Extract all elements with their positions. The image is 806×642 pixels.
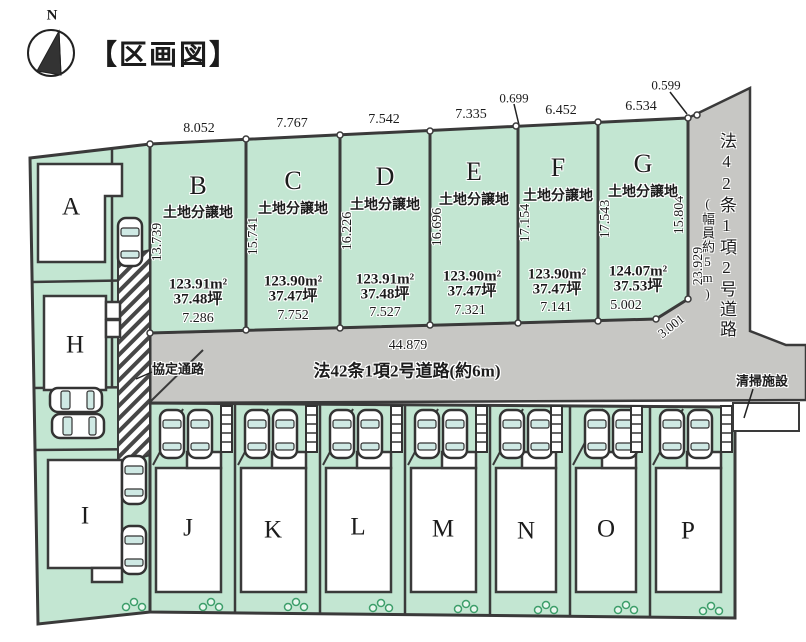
area-m2-F: 123.90m² bbox=[528, 268, 586, 283]
car-icon bbox=[52, 414, 104, 438]
plot-label-F: F bbox=[551, 155, 565, 181]
dim-top-E: 7.335 bbox=[455, 108, 487, 122]
stairs-icon bbox=[721, 406, 732, 452]
dim-side-G: 17.543 bbox=[599, 200, 613, 239]
dim-top-D: 7.542 bbox=[368, 113, 400, 127]
dim-bottom-G: 5.002 bbox=[610, 299, 642, 313]
dim-top-C: 7.767 bbox=[276, 117, 308, 131]
stairs-icon bbox=[631, 406, 642, 452]
dim-bottom-D: 7.527 bbox=[369, 306, 401, 320]
car-icon bbox=[188, 410, 212, 458]
stairs-icon bbox=[476, 406, 487, 452]
dim-road-total: 44.879 bbox=[389, 339, 428, 353]
area-m2-C: 123.90m² bbox=[264, 275, 322, 290]
plot-label-A: A bbox=[62, 195, 80, 220]
car-icon bbox=[118, 218, 142, 266]
area-tsubo-D: 37.48坪 bbox=[361, 288, 410, 303]
cleaning-facility-box bbox=[733, 403, 799, 431]
plot-label-P: P bbox=[681, 519, 695, 544]
area-tsubo-F: 37.47坪 bbox=[533, 283, 582, 298]
building-H-step bbox=[106, 320, 120, 337]
plot-label-L: L bbox=[350, 515, 365, 540]
right-road-width-note: (幅員約5m) bbox=[701, 196, 714, 302]
car-icon bbox=[245, 410, 269, 458]
area-m2-B: 123.91m² bbox=[169, 278, 227, 293]
dim-side-C: 15.741 bbox=[247, 217, 261, 256]
dim-jog-g: 0.599 bbox=[651, 79, 680, 92]
plot-category-B: 土地分譲地 bbox=[163, 207, 233, 221]
car-icon bbox=[122, 526, 146, 574]
plot-category-F: 土地分譲地 bbox=[523, 190, 593, 204]
dim-side-E: 16.696 bbox=[431, 208, 445, 247]
car-icon bbox=[358, 410, 382, 458]
right-road-name: 法42条1項2号道路 bbox=[718, 132, 735, 340]
plot-category-D: 土地分譲地 bbox=[350, 199, 420, 213]
plot-category-E: 土地分譲地 bbox=[439, 194, 509, 208]
dim-bottom-E: 7.321 bbox=[454, 304, 486, 318]
stairs-icon bbox=[306, 406, 317, 452]
dim-bottom-B: 7.286 bbox=[182, 312, 214, 326]
car-icon bbox=[660, 410, 684, 458]
car-icon bbox=[585, 410, 609, 458]
dim-bottom-F: 7.141 bbox=[540, 301, 572, 315]
center-road-name: 法42条1項2号道路(約6m) bbox=[314, 363, 501, 380]
plot-label-K: K bbox=[264, 518, 282, 543]
plot-category-C: 土地分譲地 bbox=[258, 203, 328, 217]
area-tsubo-G: 37.53坪 bbox=[614, 280, 663, 295]
area-tsubo-E: 37.47坪 bbox=[448, 285, 497, 300]
plot-map-page: 【区画図】 N 8.052 7.767 7.542 7.335 6.452 6.… bbox=[0, 0, 806, 642]
car-icon bbox=[415, 410, 439, 458]
area-m2-G: 124.07m² bbox=[609, 265, 667, 280]
dim-side-D: 16.226 bbox=[341, 212, 355, 251]
plot-label-J: J bbox=[183, 516, 193, 541]
plot-label-C: C bbox=[284, 168, 301, 194]
area-m2-D: 123.91m² bbox=[356, 273, 414, 288]
area-m2-E: 123.90m² bbox=[443, 270, 501, 285]
dim-side-G-right: 15.804 bbox=[673, 196, 687, 235]
plot-label-I: I bbox=[81, 504, 89, 529]
plot-label-N: N bbox=[517, 519, 535, 544]
compass-icon bbox=[28, 30, 74, 76]
dim-top-F: 6.452 bbox=[545, 104, 577, 118]
car-icon bbox=[500, 410, 524, 458]
plot-label-D: D bbox=[376, 164, 395, 190]
plot-label-H: H bbox=[66, 333, 84, 358]
plot-label-O: O bbox=[597, 517, 615, 542]
car-icon bbox=[160, 410, 184, 458]
page-title: 【区画図】 bbox=[89, 42, 239, 70]
stairs-icon bbox=[551, 406, 562, 452]
area-tsubo-B: 37.48坪 bbox=[174, 293, 223, 308]
plot-label-B: B bbox=[189, 173, 206, 199]
car-icon bbox=[330, 410, 354, 458]
dim-top-B: 8.052 bbox=[183, 122, 215, 136]
plot-label-E: E bbox=[466, 159, 482, 185]
car-icon bbox=[273, 410, 297, 458]
car-icon bbox=[443, 410, 467, 458]
plot-label-G: G bbox=[634, 151, 653, 177]
plot-category-G: 土地分譲地 bbox=[608, 186, 678, 200]
passage-hatch bbox=[118, 250, 150, 465]
dim-side-F: 17.154 bbox=[519, 204, 533, 243]
car-icon bbox=[528, 410, 552, 458]
building-I-step bbox=[92, 568, 122, 582]
car-icon bbox=[688, 410, 712, 458]
cleaning-facility-label: 清掃施設 bbox=[736, 375, 788, 388]
dim-jog-ef: 0.699 bbox=[499, 92, 528, 105]
compass-north-label: N bbox=[47, 9, 58, 24]
car-icon bbox=[122, 456, 146, 504]
stairs-icon bbox=[221, 406, 232, 452]
building-H-step bbox=[106, 302, 120, 319]
dim-top-G: 6.534 bbox=[625, 100, 657, 114]
area-tsubo-C: 37.47坪 bbox=[269, 290, 318, 305]
plot-label-M: M bbox=[432, 517, 454, 542]
dim-side-B: 13.739 bbox=[151, 223, 165, 262]
dim-bottom-C: 7.752 bbox=[277, 309, 309, 323]
passage-label: 協定通路 bbox=[152, 363, 204, 376]
car-icon bbox=[50, 388, 102, 412]
stairs-icon bbox=[391, 406, 402, 452]
